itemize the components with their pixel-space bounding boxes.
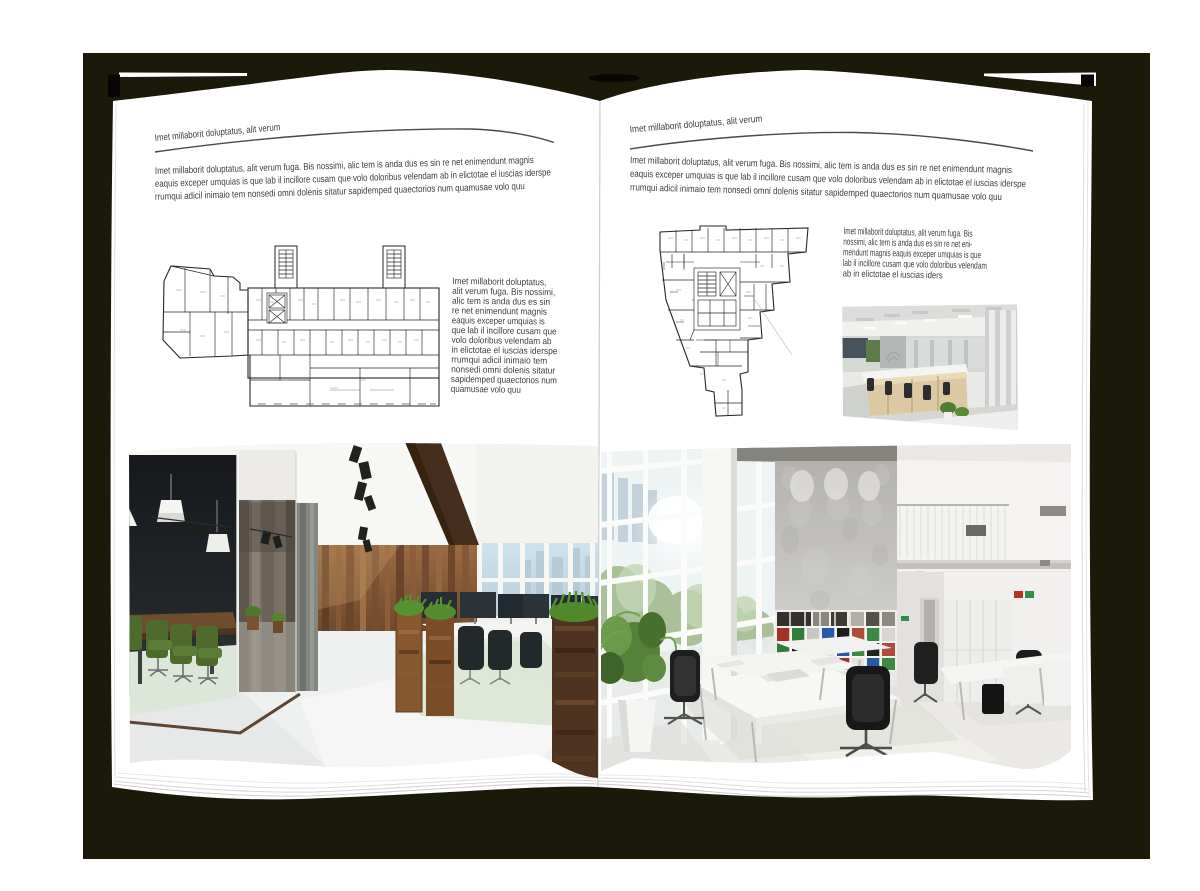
svg-text:ab in elictotae el iuscias ide: ab in elictotae el iuscias iders [843, 267, 943, 280]
svg-text:quamusae volo quu: quamusae volo quu [451, 384, 521, 395]
